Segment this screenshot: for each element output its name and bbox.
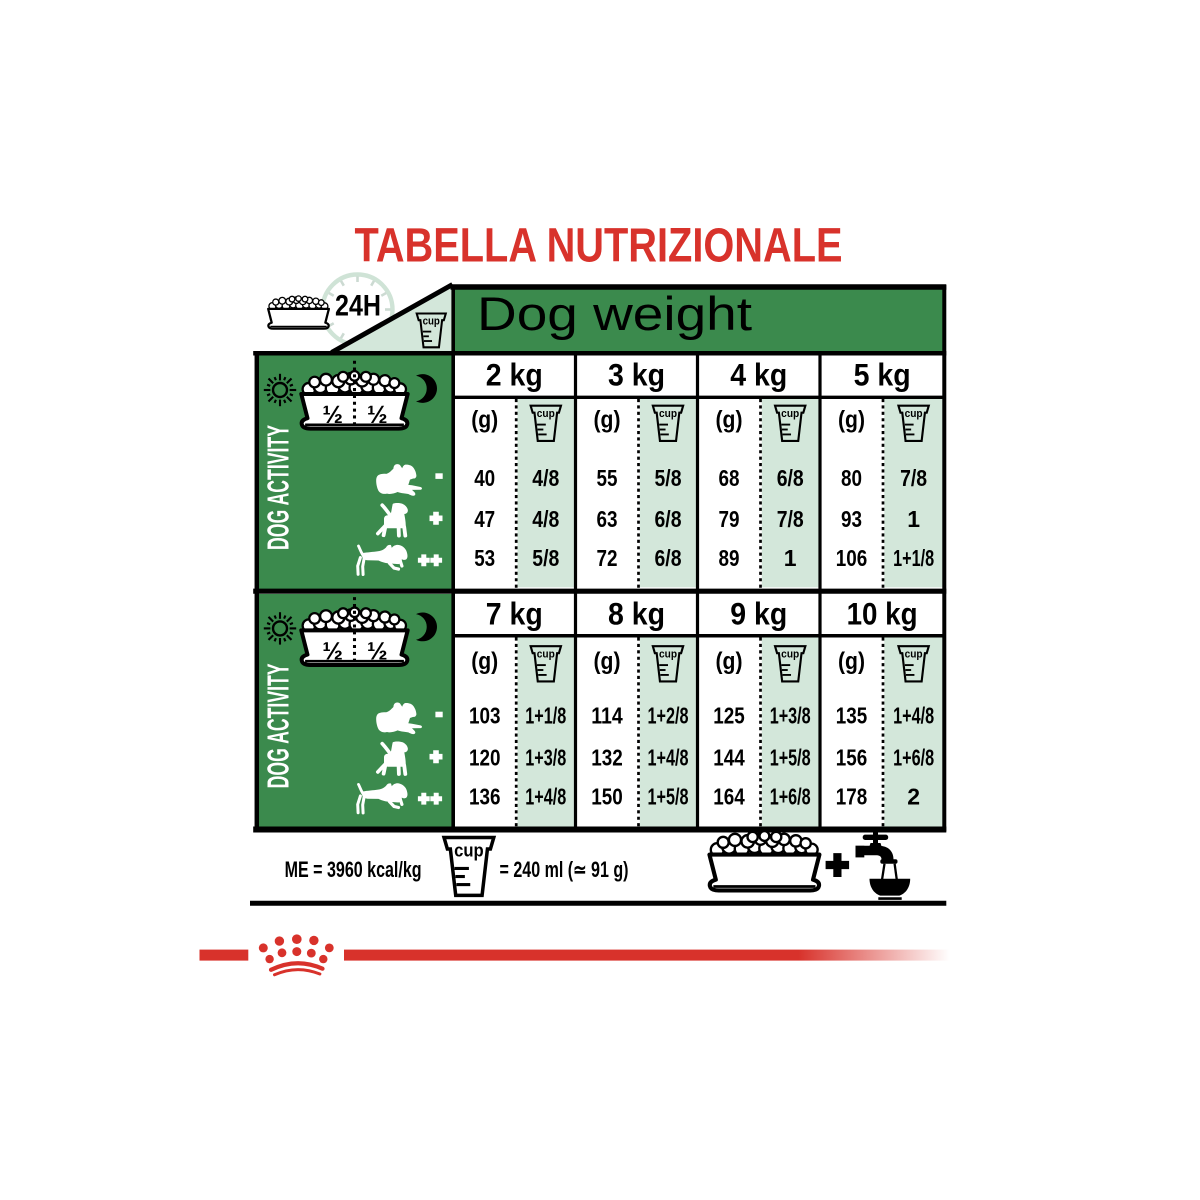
svg-text:(g): (g) [716,648,743,675]
svg-text:4/8: 4/8 [532,465,559,491]
svg-text:2: 2 [907,784,920,810]
svg-text:4 kg: 4 kg [730,357,787,393]
svg-text:40: 40 [474,465,495,491]
svg-text:1+5/8: 1+5/8 [648,784,689,810]
svg-text:178: 178 [836,784,868,810]
svg-text:156: 156 [836,745,868,771]
svg-text:68: 68 [719,465,740,491]
svg-text:125: 125 [713,703,745,729]
svg-text:106: 106 [836,545,868,571]
svg-text:8 kg: 8 kg [608,596,665,632]
svg-text:5/8: 5/8 [655,465,682,491]
svg-text:(g): (g) [594,648,621,675]
svg-text:1+3/8: 1+3/8 [770,703,811,729]
svg-text:63: 63 [597,506,618,532]
svg-text:TABELLA NUTRIZIONALE: TABELLA NUTRIZIONALE [355,220,843,273]
svg-text:6/8: 6/8 [655,506,682,532]
svg-text:½: ½ [367,402,388,429]
svg-text:72: 72 [597,545,618,571]
svg-text:1+4/8: 1+4/8 [525,784,566,810]
svg-text:1+2/8: 1+2/8 [648,703,689,729]
svg-text:135: 135 [836,703,868,729]
svg-text:(g): (g) [838,407,865,434]
svg-text:(g): (g) [471,407,498,434]
svg-text:9 kg: 9 kg [730,596,787,632]
svg-text:1+4/8: 1+4/8 [648,745,689,771]
svg-text:6/8: 6/8 [777,465,804,491]
svg-text:½: ½ [367,638,388,665]
svg-text:103: 103 [469,703,501,729]
svg-text:1+5/8: 1+5/8 [770,745,811,771]
svg-text:53: 53 [474,545,495,571]
svg-text:2 kg: 2 kg [486,357,543,393]
svg-text:(g): (g) [594,407,621,434]
svg-text:1+6/8: 1+6/8 [893,745,934,771]
svg-text:1+1/8: 1+1/8 [525,703,566,729]
svg-text:1+3/8: 1+3/8 [525,745,566,771]
svg-text:= 240 ml (≃ 91 g): = 240 ml (≃ 91 g) [500,857,629,882]
svg-text:150: 150 [591,784,623,810]
svg-text:5/8: 5/8 [532,545,559,571]
svg-text:(g): (g) [716,407,743,434]
svg-text:7/8: 7/8 [900,465,927,491]
svg-text:7/8: 7/8 [777,506,804,532]
svg-text:1+1/8: 1+1/8 [893,545,934,571]
svg-text:80: 80 [841,465,862,491]
svg-text:3 kg: 3 kg [608,357,665,393]
svg-text:55: 55 [597,465,618,491]
svg-text:7 kg: 7 kg [486,596,543,632]
svg-text:164: 164 [713,784,745,810]
svg-text:1+4/8: 1+4/8 [893,703,934,729]
svg-text:89: 89 [719,545,740,571]
svg-text:24H: 24H [335,290,381,323]
svg-text:Dog weight: Dog weight [477,288,752,341]
svg-text:79: 79 [719,506,740,532]
svg-text:114: 114 [591,703,623,729]
svg-text:5 kg: 5 kg [854,357,911,393]
svg-text:DOG ACTIVITY: DOG ACTIVITY [261,425,296,550]
svg-text:1: 1 [907,506,920,532]
svg-text:½: ½ [322,638,343,665]
svg-text:6/8: 6/8 [655,545,682,571]
svg-text:4/8: 4/8 [532,506,559,532]
svg-text:ME = 3960 kcal/kg: ME = 3960 kcal/kg [285,857,422,882]
svg-text:93: 93 [841,506,862,532]
svg-text:47: 47 [474,506,495,532]
svg-text:DOG ACTIVITY: DOG ACTIVITY [261,663,296,788]
svg-text:(g): (g) [838,648,865,675]
svg-text:120: 120 [469,745,501,771]
svg-text:136: 136 [469,784,501,810]
svg-text:132: 132 [591,745,623,771]
svg-text:10 kg: 10 kg [847,596,918,632]
svg-text:½: ½ [322,402,343,429]
svg-text:(g): (g) [471,648,498,675]
svg-text:144: 144 [713,745,745,771]
svg-text:1: 1 [784,545,797,571]
svg-text:1+6/8: 1+6/8 [770,784,811,810]
